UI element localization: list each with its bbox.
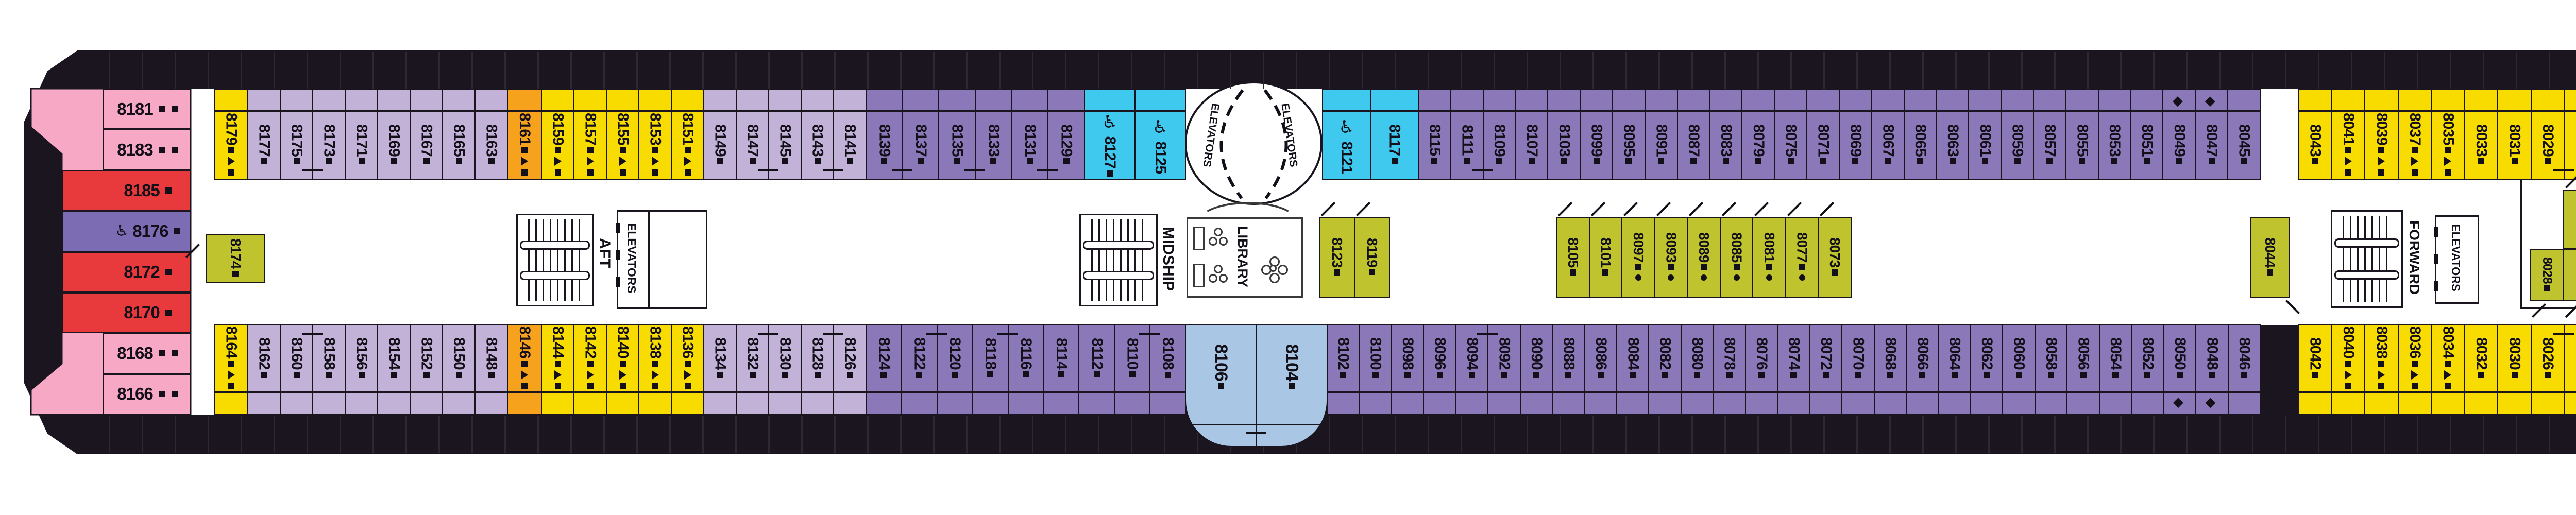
cabin-8141: 8141 [833, 89, 867, 180]
berth-square [2445, 383, 2451, 389]
berth-square [2046, 158, 2053, 164]
cabin-number: 8150 [451, 337, 468, 370]
berth-square [1982, 158, 1988, 164]
upper-berth-arrow-icon [554, 157, 562, 166]
berth-square [881, 158, 887, 164]
berth-square [2478, 372, 2484, 378]
cabin-8072: 8072 [1809, 324, 1842, 415]
cabin-number: 8117 [1386, 124, 1403, 156]
cabin-8077: 8077 [1785, 217, 1819, 298]
cabin-number: 8030 [2506, 337, 2523, 370]
library-plant [1261, 256, 1287, 282]
cabin-number: 8064 [1946, 337, 1963, 370]
cabin-8101: 8101 [1589, 217, 1623, 298]
cabin-8095: 8095 [1612, 89, 1646, 180]
cabin-number: 8107 [1523, 124, 1540, 157]
stair-rail [2334, 270, 2399, 280]
cabin-8117: 8117 [1370, 89, 1419, 180]
cabin-8075: 8075 [1774, 89, 1807, 180]
berth-square [1094, 371, 1100, 377]
cabin-8128: 8128 [801, 324, 834, 415]
cabin-number: 8139 [876, 124, 893, 157]
cabin-8051: 8051 [2130, 89, 2164, 180]
cabin-number: 8026 [2539, 337, 2556, 370]
berth-square [815, 372, 821, 378]
berth-square [2378, 360, 2384, 367]
cabin-8122: 8122 [901, 324, 938, 415]
aft-elevators: ELEVATORS [617, 210, 707, 309]
cabin-8162: 8162 [247, 324, 281, 415]
cabin-number: 8097 [1631, 232, 1647, 262]
cabin-number: 8125 [1152, 141, 1169, 174]
cabin-8164: 8164 [214, 324, 248, 415]
cabin-8125: ♿ 8125 [1134, 89, 1186, 180]
berth-square [918, 158, 924, 164]
berth-square [294, 158, 300, 164]
cabin-number: 8106 [1211, 344, 1231, 381]
cabin-8149: 8149 [703, 89, 737, 180]
cabin-8134: 8134 [703, 324, 737, 415]
berth-square [423, 158, 430, 164]
berth-square [2378, 383, 2384, 389]
hull-band-bottom [77, 416, 2576, 453]
upper-berth-arrow-icon [2411, 157, 2418, 166]
cabin-8115: 8115 [1418, 89, 1451, 180]
berth-square [1887, 372, 1893, 378]
cabin-8169: 8169 [377, 89, 411, 180]
cabin-8076: 8076 [1745, 324, 1778, 415]
berth-square [359, 372, 365, 378]
cabin-8110: 8110 [1114, 324, 1150, 415]
berth-square [521, 383, 528, 389]
cabin-8084: 8084 [1616, 324, 1649, 415]
library-table [1193, 264, 1205, 287]
berth-square [2209, 158, 2215, 164]
cabin-8103: 8103 [1547, 89, 1581, 180]
cabin-8040: 8040 [2331, 324, 2366, 415]
berth-square [1533, 372, 1539, 378]
berth-square [685, 360, 691, 367]
cabin-number: 8078 [1721, 337, 1738, 370]
berth-square [2445, 147, 2451, 153]
berth-square [488, 158, 495, 164]
cabin-number: 8089 [1696, 232, 1712, 262]
berth-square [159, 391, 165, 397]
cabin-8158: 8158 [312, 324, 346, 415]
forward-elevators-label: ELEVATORS [2450, 224, 2461, 291]
cabin-number: 8175 [289, 124, 306, 157]
berth-square [1885, 158, 1891, 164]
berth-square [159, 350, 165, 356]
cabin-8045: 8045 [2227, 89, 2261, 180]
cabin-number: 8080 [1689, 337, 1706, 370]
berth-square [2016, 372, 2022, 378]
berth-square [2209, 372, 2215, 378]
cabin-8100: 8100 [1359, 324, 1392, 415]
cabin-8090: 8090 [1520, 324, 1553, 415]
cabin-number: 8148 [483, 337, 500, 370]
berth-square [555, 383, 561, 389]
cabin-8060: 8060 [2002, 324, 2035, 415]
cabin-number: 8172 [124, 262, 159, 282]
cabin-8150: 8150 [442, 324, 476, 415]
cabin-8139: 8139 [866, 89, 903, 180]
berth-square [165, 310, 172, 316]
cabin-8181: 8181 [103, 89, 191, 129]
cabin-number: 8079 [1750, 124, 1767, 157]
cabin-number: 8095 [1620, 124, 1637, 157]
cabin-8161: 8161 [507, 89, 542, 180]
cabin-8142: 8142 [573, 324, 607, 415]
berth-square [685, 169, 691, 176]
cabin-8094: 8094 [1455, 324, 1488, 415]
berth-square [165, 187, 172, 194]
cabin-8091: 8091 [1645, 89, 1678, 180]
cabin-number: 8103 [1556, 124, 1573, 157]
elevator-doors [616, 223, 620, 296]
diamond-icon: ◆ [2173, 394, 2183, 410]
cabin-number: 8076 [1753, 337, 1770, 370]
berth-square [880, 372, 887, 378]
berth-square [2445, 360, 2451, 367]
cabin-number: 8161 [516, 113, 533, 145]
connecting-cabins-line [758, 333, 778, 335]
sofa-bed-circle [1668, 274, 1674, 281]
cabin-8099: 8099 [1580, 89, 1613, 180]
cabin-8129: 8129 [1047, 89, 1085, 180]
cabin-8092: 8092 [1487, 324, 1520, 415]
cabin-number: 8159 [550, 113, 567, 145]
cabin-number: 8056 [2075, 337, 2092, 370]
cabin-number: 8126 [842, 337, 859, 370]
cabin-number: 8132 [744, 337, 761, 370]
berth-square [1690, 158, 1697, 164]
berth-square [228, 169, 234, 176]
connecting-cabins-line [964, 169, 985, 171]
cabin-8058: 8058 [2035, 324, 2067, 415]
cabin-8035: 8035 [2431, 89, 2465, 180]
cabin-8082: 8082 [1648, 324, 1681, 415]
berth-square [782, 158, 788, 164]
cabin-8030: 8030 [2497, 324, 2532, 415]
cabin-8046: 8046 [2228, 324, 2261, 415]
cabin-number: 8118 [982, 338, 999, 369]
cabin-number: 8166 [117, 384, 152, 404]
berth-square [456, 372, 462, 378]
cabin-8093: 8093 [1654, 217, 1688, 298]
sofa-bed-circle [1799, 274, 1805, 281]
cabin-8119: 8119 [1354, 217, 1390, 298]
stairs-icon [2343, 216, 2391, 302]
cabin-number: 8179 [223, 113, 240, 145]
cabin-8038: 8038 [2364, 324, 2399, 415]
cabin-number: 8177 [256, 124, 273, 157]
cabin-number: 8034 [2439, 326, 2456, 358]
cabin-number: 8110 [1124, 338, 1141, 369]
berth-square [1602, 269, 1608, 276]
cabin-8124: 8124 [866, 324, 902, 415]
cabin-8137: 8137 [902, 89, 940, 180]
connecting-cabins-line [997, 333, 1018, 335]
connecting-cabins-line [1472, 169, 1493, 171]
cabin-number: 8102 [1335, 337, 1352, 370]
cabin-8043: 8043 [2298, 89, 2332, 180]
cabin-number: 8120 [946, 337, 963, 370]
cabin-number: 8140 [615, 326, 632, 358]
upper-berth-arrow-icon [684, 370, 691, 380]
cabin-8071: 8071 [1806, 89, 1840, 180]
berth-square [1726, 372, 1733, 378]
diamond-icon: ◆ [2205, 93, 2215, 109]
cabin-number: 8108 [1160, 337, 1177, 370]
berth-square [1658, 158, 1664, 164]
cabin-number: 8174 [228, 238, 244, 268]
berth-square [228, 147, 234, 153]
berth-square [1635, 264, 1641, 270]
cabin-8174: 8174 [206, 234, 265, 283]
cabin-8056: 8056 [2066, 324, 2099, 415]
cabin-8061: 8061 [1968, 89, 2002, 180]
cabin-8140: 8140 [606, 324, 639, 415]
cabin-8096: 8096 [1423, 324, 1456, 415]
sofa-bed-circle [1635, 274, 1641, 281]
cabin-number: 8164 [223, 326, 240, 358]
cabin-8029: 8029 [2531, 89, 2565, 180]
cabin-number: 8045 [2236, 124, 2253, 157]
cabin-number: 8037 [2406, 113, 2424, 145]
cabin-8116: 8116 [1008, 324, 1044, 415]
cabin-8078: 8078 [1713, 324, 1745, 415]
cabin-number: 8168 [117, 344, 152, 363]
berth-square [1758, 372, 1765, 378]
cabin-number: 8077 [1794, 232, 1810, 262]
berth-square [2112, 372, 2119, 378]
berth-square [521, 169, 528, 176]
berth-square [1852, 158, 1858, 164]
cabin-8130: 8130 [768, 324, 802, 415]
diamond-icon: ◆ [2173, 93, 2183, 109]
cabin-number: 8123 [1329, 237, 1345, 267]
berth-square [1790, 372, 1797, 378]
cabin-number: 8067 [1879, 124, 1896, 157]
cabin-8157: 8157 [573, 89, 607, 180]
sofa-bed-circle [1701, 274, 1707, 281]
berth-square [1165, 372, 1171, 378]
cabin-8120: 8120 [937, 324, 973, 415]
cabin-8159: 8159 [541, 89, 574, 180]
berth-square [1820, 158, 1826, 164]
cabin-8106: 8106 [1185, 324, 1257, 447]
connecting-cabins-line [1477, 333, 1498, 335]
berth-square [620, 147, 626, 153]
berth-square [2080, 372, 2087, 378]
berth-square [2312, 372, 2318, 378]
berth-square [159, 106, 165, 112]
sofa-bed-circle [1734, 274, 1740, 281]
cabin-number: 8065 [1912, 124, 1929, 157]
berth-square [1855, 372, 1861, 378]
cabin-number: 8074 [1785, 337, 1802, 370]
cabin-number: 8035 [2439, 113, 2456, 145]
berth-square [391, 158, 397, 164]
cabin-8070: 8070 [1841, 324, 1874, 415]
connecting-cabins-line [892, 169, 912, 171]
berth-square [652, 360, 658, 367]
upper-berth-arrow-icon [652, 370, 659, 380]
cabin-8065: 8065 [1904, 89, 1937, 180]
cabin-number: 8145 [777, 124, 794, 157]
cabin-number: 8129 [1058, 124, 1075, 157]
cabin-number: 8116 [1018, 338, 1035, 369]
cabin-number: 8165 [451, 124, 468, 157]
cabin-8069: 8069 [1839, 89, 1872, 180]
berth-square [652, 169, 658, 176]
cabin-number: 8121 [1338, 141, 1355, 174]
cabin-8143: 8143 [801, 89, 834, 180]
cabin-number: 8059 [2009, 124, 2026, 157]
cabin-8160: 8160 [280, 324, 313, 415]
cabin-number: 8069 [1847, 124, 1864, 157]
cabin-number: 8040 [2340, 326, 2357, 358]
cabin-8170: 8170 [62, 293, 191, 333]
wheelchair-icon: ♿ [1150, 117, 1170, 141]
cabin-number: 8115 [1426, 124, 1443, 156]
cabin-number: 8127 [1101, 136, 1118, 168]
cabin-8089: 8089 [1687, 217, 1721, 298]
cabin-8031: 8031 [2497, 89, 2532, 180]
cabin-8153: 8153 [638, 89, 672, 180]
cabin-number: 8142 [582, 326, 599, 358]
cabin-number: 8051 [2139, 124, 2156, 157]
cabin-number: 8112 [1089, 338, 1106, 369]
cabin-8054: 8054 [2099, 324, 2132, 415]
cabin-8041: 8041 [2331, 89, 2366, 180]
cabin-number: 8093 [1663, 232, 1679, 262]
cabin-8032: 8032 [2464, 324, 2499, 415]
connecting-cabins-line [1037, 169, 1058, 171]
upper-berth-arrow-icon [521, 370, 528, 380]
berth-square [2478, 158, 2484, 164]
berth-square [423, 372, 430, 378]
cabin-8131: 8131 [1011, 89, 1049, 180]
cabin-number: 8084 [1624, 337, 1641, 370]
cabin-number: 8134 [712, 337, 729, 370]
cabin-8118: 8118 [972, 324, 1009, 415]
cabin-8109: 8109 [1483, 89, 1516, 180]
cabin-8024: 8024 [2563, 249, 2576, 301]
wheelchair-icon: ♿ [1337, 117, 1357, 141]
berth-square [1529, 158, 1535, 164]
berth-square [815, 158, 821, 164]
berth-square [1701, 264, 1707, 270]
cabin-number: 8055 [2074, 124, 2091, 157]
cabin-number: 8082 [1657, 337, 1674, 370]
connecting-cabins-line [302, 169, 323, 171]
cabin-8165: 8165 [442, 89, 476, 180]
berth-square [172, 147, 178, 153]
cabin-8105: 8105 [1556, 217, 1590, 298]
berth-square [685, 147, 691, 153]
cabin-number: 8041 [2340, 113, 2357, 145]
berth-square [652, 383, 658, 389]
cabin-8136: 8136 [671, 324, 704, 415]
berth-square [1630, 372, 1636, 378]
berth-square [2412, 383, 2418, 389]
cabin-8080: 8080 [1681, 324, 1714, 415]
berth-square [2111, 158, 2117, 164]
berth-square [1063, 158, 1070, 164]
cabin-number: 8070 [1850, 337, 1867, 370]
aft-elevators-label: ELEVATORS [625, 223, 637, 294]
cabin-number: 8185 [124, 181, 159, 200]
berth-square [2079, 158, 2085, 164]
cabin-number: 8096 [1432, 337, 1449, 370]
berth-square [2345, 147, 2351, 153]
cabin-8168: 8168 [103, 333, 191, 374]
upper-berth-arrow-icon [2444, 157, 2451, 166]
cabin-number: 8154 [386, 337, 403, 370]
berth-square [750, 158, 756, 164]
cabin-number: 8072 [1818, 337, 1835, 370]
berth-square [174, 228, 180, 234]
sofa-bed-circle [1766, 274, 1772, 281]
berth-square [1431, 158, 1437, 164]
cabin-8081: 8081 [1752, 217, 1786, 298]
library-chairs [1209, 265, 1226, 282]
cabin-number: 8114 [1053, 338, 1070, 369]
berth-square [2445, 169, 2451, 176]
cabin-number: 8049 [2171, 124, 2188, 157]
cabin-8173: 8173 [312, 89, 346, 180]
cabin-8104: 8104 [1256, 324, 1328, 447]
elevator-doors [2434, 227, 2438, 292]
upper-berth-arrow-icon [228, 157, 235, 166]
cabin-number: 8058 [2043, 337, 2060, 370]
berth-square [2545, 372, 2551, 378]
cabin-number: 8088 [1560, 337, 1577, 370]
upper-berth-arrow-icon [2411, 370, 2418, 380]
berth-square [987, 371, 993, 377]
berth-square [2176, 158, 2182, 164]
cabin-8183: 8183 [103, 129, 191, 170]
berth-square [1404, 372, 1411, 378]
cabin-8022: 8022 [2564, 324, 2576, 415]
cabin-number: 8146 [516, 326, 533, 358]
cabin-number: 8104 [1282, 344, 1301, 381]
cabin-8123: 8123 [1319, 217, 1355, 298]
cabin-number: 8050 [2172, 337, 2189, 370]
berth-square [555, 360, 561, 367]
berth-square [2512, 158, 2518, 164]
cabin-number: 8090 [1528, 337, 1545, 370]
berth-square [717, 158, 723, 164]
cabin-8132: 8132 [736, 324, 769, 415]
cabin-8066: 8066 [1906, 324, 1939, 415]
cabin-8102: 8102 [1327, 324, 1360, 415]
cabin-8063: 8063 [1936, 89, 1970, 180]
upper-berth-arrow-icon [554, 370, 562, 380]
library-chairs [1209, 228, 1226, 245]
cabin-number: 8157 [582, 113, 599, 145]
cabin-8088: 8088 [1552, 324, 1585, 415]
berth-square [587, 169, 594, 176]
cabin-number: 8163 [483, 124, 500, 157]
berth-square [2312, 158, 2318, 164]
cabin-number: 8109 [1491, 124, 1508, 157]
berth-square [2241, 158, 2247, 164]
stair-rail [2334, 238, 2399, 248]
cabin-8085: 8085 [1720, 217, 1754, 298]
